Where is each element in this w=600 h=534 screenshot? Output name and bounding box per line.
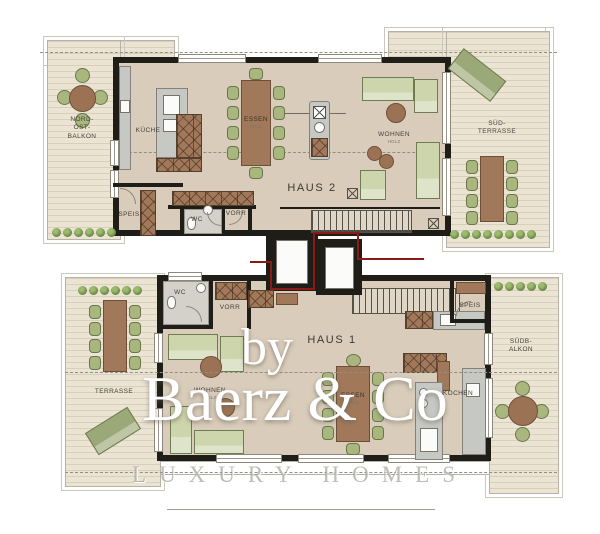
plant-icon	[122, 286, 131, 295]
room-label-wc: WC	[187, 216, 207, 224]
speis-text: SPEIS	[459, 302, 480, 309]
stove-ring	[314, 122, 325, 133]
floor-drain-symbol	[428, 218, 439, 229]
hall-bench	[276, 293, 298, 305]
plant-icon	[450, 230, 459, 239]
chair	[227, 126, 239, 140]
chair	[227, 146, 239, 160]
planter-row	[494, 282, 547, 291]
plant-icon	[527, 230, 536, 239]
chair	[129, 339, 141, 353]
chair	[89, 322, 101, 336]
interior-wall	[163, 325, 213, 329]
round-table	[69, 85, 96, 112]
plant-icon	[538, 282, 547, 291]
plant-icon	[494, 230, 503, 239]
chair	[506, 211, 518, 225]
plant-icon	[85, 228, 94, 237]
haus2-text: HAUS 2	[287, 182, 336, 194]
floor-plan-canvas: KÜCHE ESSENHOLZ WOHNENHOLZ HAUS 2 SPEIS …	[0, 0, 600, 534]
vorr-text: VORR	[226, 210, 246, 217]
floor-note: HOLZ	[366, 139, 422, 145]
terrasse-text: SÜD- TERRASSE	[478, 120, 516, 135]
chair	[273, 126, 285, 140]
plant-icon	[78, 286, 87, 295]
hall-cabinet	[172, 191, 254, 206]
plant-icon	[516, 230, 525, 239]
elevator-cab-right	[325, 247, 354, 289]
plant-icon	[107, 228, 116, 237]
chair	[506, 177, 518, 191]
chair	[346, 443, 360, 455]
plant-icon	[505, 282, 514, 291]
plant-icon	[516, 282, 525, 291]
hall-cabinet	[215, 282, 247, 300]
essen-text: ESSEN	[244, 116, 268, 123]
chair	[506, 160, 518, 174]
chair	[129, 305, 141, 319]
window	[484, 333, 493, 365]
unit-label-haus2: HAUS 2	[272, 182, 352, 194]
planter-row	[450, 230, 536, 239]
washbasin	[196, 283, 206, 293]
cooktop-appliance	[163, 95, 180, 115]
chair	[273, 106, 285, 120]
chair	[75, 68, 90, 83]
chair	[515, 427, 530, 442]
pouf	[379, 154, 394, 169]
wc-text: WC	[174, 289, 186, 296]
railing-wall	[280, 207, 440, 209]
room-label-vorr: VORR	[214, 304, 246, 312]
round-table	[508, 396, 538, 426]
plant-icon	[96, 228, 105, 237]
watermark-tagline-text: LUXURY HOMES	[132, 462, 468, 487]
kitchen-cabinet	[156, 158, 202, 172]
watermark-brand-text: Baerz & Co	[142, 363, 448, 434]
coffee-table	[386, 103, 406, 123]
room-label-kueche: KÜCHE	[126, 127, 170, 135]
terrace-door	[442, 72, 451, 144]
plant-icon	[52, 228, 61, 237]
wardrobe-cabinet	[456, 282, 486, 294]
room-label-sued-balkon: SÜDB- ALKON	[498, 338, 544, 355]
chair	[227, 106, 239, 120]
kitchen-counter	[119, 66, 131, 170]
kueche-text: KÜCHE	[136, 127, 161, 134]
wc-text: WC	[191, 216, 203, 223]
vorr-text: VORR	[220, 304, 240, 311]
window	[154, 333, 163, 363]
plant-icon	[133, 286, 142, 295]
kitchen-sink	[120, 100, 130, 113]
window	[110, 140, 119, 166]
sofa	[414, 79, 438, 113]
kitchen-cabinet	[176, 114, 202, 158]
speis-text: SPEIS	[118, 211, 139, 218]
chair	[249, 167, 263, 179]
hall-cabinet	[248, 290, 274, 308]
room-label-speis: SPEIS	[112, 211, 146, 219]
room-label-wohnen: WOHNENHOLZ	[366, 131, 422, 145]
plant-icon	[63, 228, 72, 237]
chair	[89, 305, 101, 319]
toilet	[167, 296, 176, 309]
property-line-top	[40, 52, 557, 53]
room-label-vorr: VORR	[222, 210, 250, 218]
chair	[506, 194, 518, 208]
elevator-cab-left	[276, 240, 308, 284]
room-label-nord-ost-balkon: NORD- OST- BALKON	[52, 116, 112, 141]
planter-row	[52, 228, 116, 237]
plant-icon	[494, 282, 503, 291]
plant-icon	[111, 286, 120, 295]
plant-icon	[74, 228, 83, 237]
interior-wall	[450, 319, 490, 323]
interior-wall	[113, 183, 183, 187]
chair	[249, 68, 263, 80]
outdoor-table	[480, 156, 504, 222]
plant-icon	[505, 230, 514, 239]
chair	[273, 86, 285, 100]
chair	[466, 160, 478, 174]
balkon-text: SÜDB- ALKON	[509, 338, 533, 353]
terrace-door	[442, 158, 451, 216]
chair	[227, 86, 239, 100]
stairs-haus2	[311, 210, 412, 233]
window	[178, 54, 246, 63]
floor-note: HOLZ	[241, 124, 271, 130]
chair	[89, 339, 101, 353]
sofa	[360, 170, 386, 200]
room-label-wc: WC	[170, 289, 190, 297]
chair	[515, 381, 530, 396]
plant-icon	[461, 230, 470, 239]
plant-icon	[472, 230, 481, 239]
plant-icon	[483, 230, 492, 239]
kitchen-cabinet	[405, 311, 433, 329]
sofa	[362, 77, 414, 101]
chair	[129, 322, 141, 336]
watermark-tagline: LUXURY HOMES	[115, 462, 485, 488]
plant-icon	[100, 286, 109, 295]
planter-row	[78, 286, 142, 295]
vent-symbol	[313, 106, 326, 119]
room-label-sued-terrasse: SÜD- TERRASSE	[462, 120, 532, 137]
watermark-underline	[167, 509, 435, 510]
window	[168, 272, 202, 281]
watermark-brand: Baerz & Co	[100, 362, 490, 436]
stove-base	[311, 138, 328, 157]
wohnen-text: WOHNEN	[378, 131, 410, 138]
sofa	[416, 142, 440, 199]
balkon-text: NORD- OST- BALKON	[68, 116, 97, 140]
window	[318, 54, 382, 63]
chair	[466, 177, 478, 191]
plant-icon	[527, 282, 536, 291]
room-label-essen: ESSENHOLZ	[241, 116, 271, 130]
chair	[466, 211, 478, 225]
chair	[466, 194, 478, 208]
plant-icon	[89, 286, 98, 295]
room-label-speis: SPEIS	[452, 302, 488, 310]
chair	[273, 146, 285, 160]
